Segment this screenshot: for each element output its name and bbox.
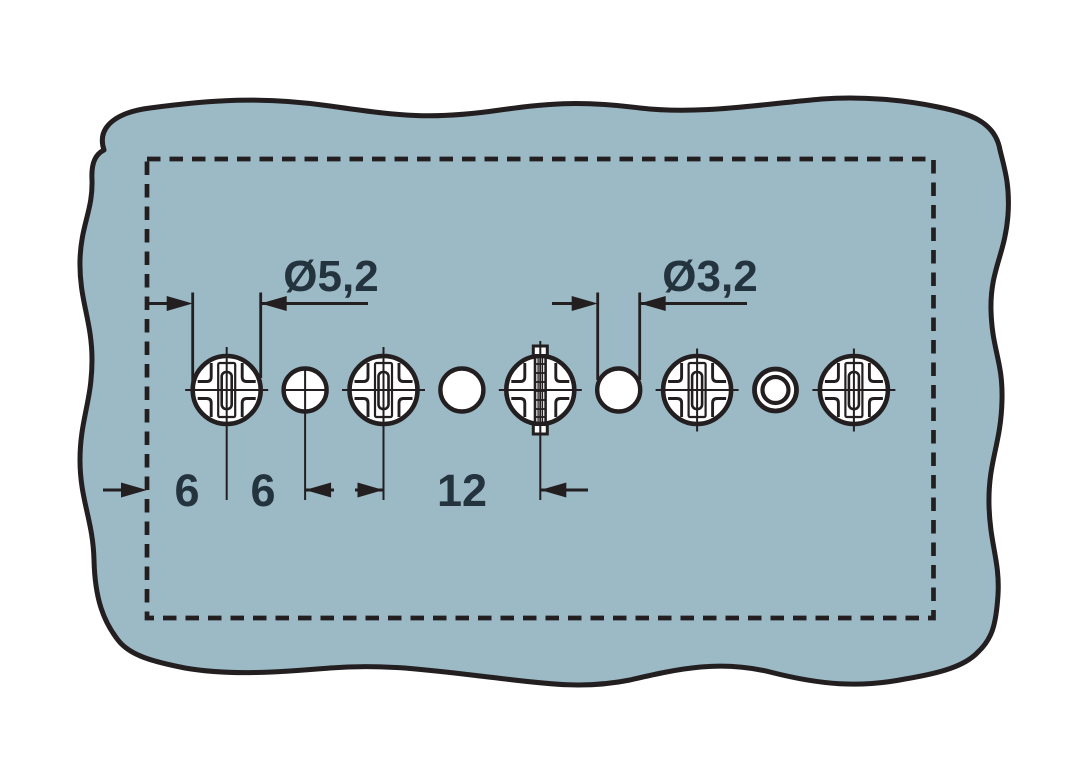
dim-label-diameter-large: Ø5,2 bbox=[283, 252, 378, 301]
dim-label-diameter-small: Ø3,2 bbox=[662, 252, 757, 301]
drilling-template-diagram: Ø5,2 Ø3,2 6 6 12 bbox=[0, 0, 1087, 774]
hole-pilot-6 bbox=[597, 369, 640, 412]
hole-sleeve-8 bbox=[755, 369, 797, 411]
hole-pilot-4 bbox=[440, 369, 483, 412]
dim-label-pitch-small: 6 bbox=[250, 465, 275, 516]
dim-label-pitch-large: 12 bbox=[437, 465, 487, 516]
dim-label-edge-distance: 6 bbox=[174, 465, 199, 516]
